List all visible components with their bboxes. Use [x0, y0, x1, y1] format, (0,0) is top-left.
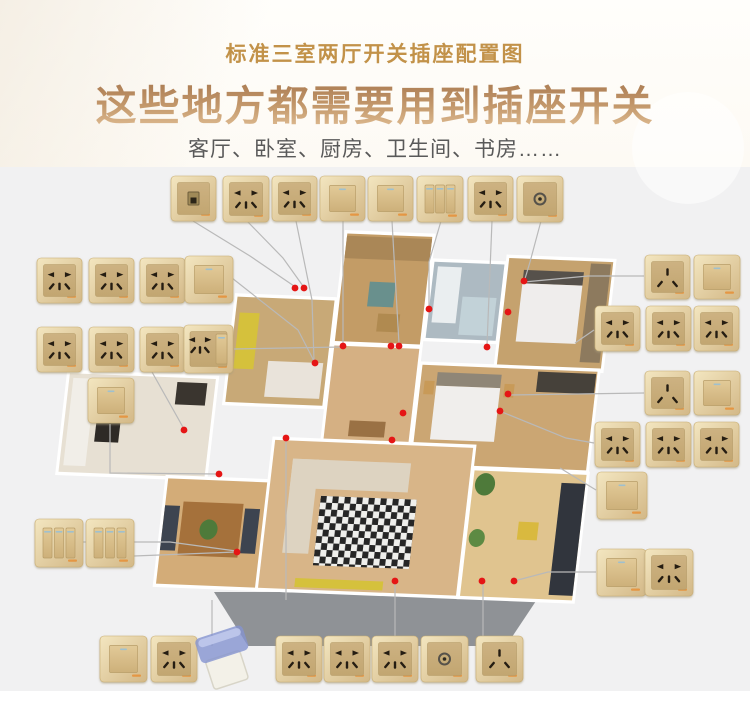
- brand-mark: [398, 214, 407, 216]
- red-dot: [312, 360, 319, 367]
- plate-socket3: [645, 255, 690, 299]
- plate-socket5: [272, 176, 317, 221]
- red-dot: [292, 285, 299, 292]
- brand-mark: [632, 512, 641, 514]
- plate-socket5: [89, 327, 134, 372]
- red-dot: [396, 343, 403, 350]
- plate-switch1: [597, 472, 647, 519]
- red-dot: [426, 306, 433, 313]
- furniture-study-bed: [264, 361, 323, 399]
- plate-socket5: [372, 636, 418, 682]
- page-subtitle-top: 标准三室两厅开关插座配置图: [0, 38, 750, 68]
- red-dot: [511, 578, 518, 585]
- red-dot: [181, 427, 188, 434]
- plate-tv: [421, 636, 468, 682]
- page-subtitle-rooms: 客厅、卧室、厨房、卫生间、书房……: [0, 133, 750, 163]
- red-dot: [479, 578, 486, 585]
- red-dot: [497, 408, 504, 415]
- brand-mark: [132, 675, 141, 677]
- red-dot: [505, 391, 512, 398]
- plate-switch1: [694, 255, 740, 299]
- brand-mark: [68, 560, 77, 562]
- furniture-curtain: [344, 236, 432, 262]
- brand-mark: [631, 589, 640, 591]
- plate-socket5: [694, 306, 739, 351]
- red-dot: [521, 278, 528, 285]
- connector-line: [247, 221, 303, 286]
- brand-mark: [725, 408, 734, 410]
- furniture-bed2-headboard: [436, 372, 502, 388]
- plate-socket5: [595, 306, 640, 351]
- furniture-balcony-chair: [517, 522, 539, 541]
- plate-socket5: [694, 422, 739, 467]
- furniture-master-bed: [516, 283, 583, 344]
- furniture-bed2-bed: [430, 386, 500, 442]
- red-dot: [234, 549, 241, 556]
- plate-socket5: [645, 549, 693, 596]
- furniture-shower-glass: [458, 297, 496, 336]
- red-dot: [340, 343, 347, 350]
- plate-socket5: [140, 327, 185, 372]
- brand-mark: [448, 215, 457, 217]
- red-dot: [283, 435, 290, 442]
- plate-switch1: [88, 378, 134, 423]
- plate-switch1: [368, 176, 413, 221]
- furniture-bed2-closet: [536, 372, 596, 394]
- brand-mark: [218, 296, 227, 298]
- plate-switch1: [694, 371, 740, 415]
- plate-socket5: [223, 176, 269, 222]
- plate-socket5: [37, 258, 82, 303]
- plate-switch3: [417, 176, 463, 222]
- plate-socket5: [89, 258, 134, 303]
- red-dot: [505, 309, 512, 316]
- furniture-armchair: [367, 282, 396, 308]
- red-dot: [388, 343, 395, 350]
- plate-switch1: [320, 176, 365, 221]
- plate-socket5: [37, 327, 82, 372]
- red-dot: [392, 578, 399, 585]
- plate-switch1: [100, 636, 147, 682]
- plate-socket5: [468, 176, 513, 221]
- plate-switch1: [597, 549, 646, 596]
- brand-mark: [350, 214, 359, 216]
- plate-combo: [184, 325, 233, 373]
- furniture-side-table: [376, 314, 400, 333]
- plate-tv: [517, 176, 563, 222]
- red-dot: [301, 285, 308, 292]
- furniture-rug: [313, 496, 417, 569]
- furniture-hall-door: [348, 420, 386, 437]
- furniture-fridge: [175, 382, 208, 406]
- plate-switch1: [185, 256, 233, 303]
- red-dot: [400, 410, 407, 417]
- plate-socket5: [595, 422, 640, 467]
- plate-socket5: [646, 306, 691, 351]
- plate-switch3: [35, 519, 83, 567]
- red-dot: [216, 471, 223, 478]
- furniture-nightstand-left: [423, 381, 435, 395]
- plate-socket5: [324, 636, 370, 682]
- plate-socket5: [276, 636, 322, 682]
- plate-socket3: [476, 636, 523, 682]
- brand-mark: [119, 560, 128, 562]
- brand-mark: [725, 292, 734, 294]
- plate-switch3: [86, 519, 134, 567]
- plate-socket5: [140, 258, 185, 303]
- plate-socket5: [151, 636, 197, 682]
- red-dot: [389, 437, 396, 444]
- page-title: 这些地方都需要用到插座开关: [0, 72, 750, 132]
- brand-mark: [119, 416, 128, 418]
- plate-socket5: [646, 422, 691, 467]
- plate-net: [171, 176, 216, 221]
- red-dot: [484, 344, 491, 351]
- plate-socket3: [645, 371, 690, 415]
